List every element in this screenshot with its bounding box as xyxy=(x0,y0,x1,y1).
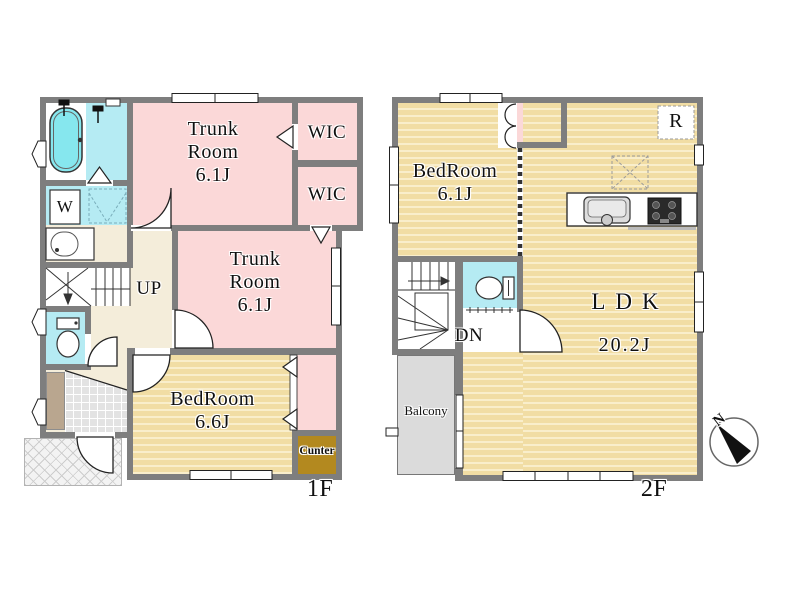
shoe-cabinet xyxy=(46,372,65,430)
ldk-size: 20.2J xyxy=(558,334,692,357)
trunk-room-upper-label: Trunk Room 6.1J xyxy=(148,118,278,188)
toilet-room-1f xyxy=(46,312,85,364)
ldk-south-strip xyxy=(463,352,523,475)
refrigerator-label: R xyxy=(658,110,694,133)
stairs-1f xyxy=(46,268,130,306)
bedroom-2f-label: BedRoom 6.1J xyxy=(396,160,514,206)
bathroom-tub-area xyxy=(46,103,86,180)
window-north-2f xyxy=(440,94,502,103)
stairs-up-label: UP xyxy=(128,278,170,300)
floor2-label: 2F xyxy=(628,476,680,504)
ldk-name: LDK xyxy=(568,289,692,316)
wic-lower-label: WIC xyxy=(297,184,357,206)
counter-label: Cunter xyxy=(298,445,336,458)
wic-upper-label: WIC xyxy=(297,122,357,144)
window-west-bath xyxy=(32,141,46,167)
window-north-1f xyxy=(172,94,258,103)
bedroom-closet-1f xyxy=(292,355,336,430)
entrance-porch xyxy=(24,438,122,486)
trunk-room-lower-label: Trunk Room 6.1J xyxy=(190,248,320,318)
bedroom-1f-label: BedRoom 6.6J xyxy=(145,388,280,434)
floor1-label: 1F xyxy=(294,476,346,504)
ldk-label: LDK 20.2J xyxy=(558,270,692,376)
window-west-genkan xyxy=(32,399,46,425)
toilet-room-2f xyxy=(461,262,517,308)
balcony-label: Balcony xyxy=(393,403,459,418)
floor-plan-stage: Trunk Room 6.1J WIC WIC Trunk Room 6.1J … xyxy=(0,0,800,600)
window-west-toilet xyxy=(32,309,46,335)
washer-label: W xyxy=(49,197,81,217)
compass-north-label: N xyxy=(704,405,737,436)
stairs-dn-label: DN xyxy=(446,325,492,347)
bathroom-wet-area xyxy=(86,103,127,180)
genkan-tiles xyxy=(65,370,127,432)
